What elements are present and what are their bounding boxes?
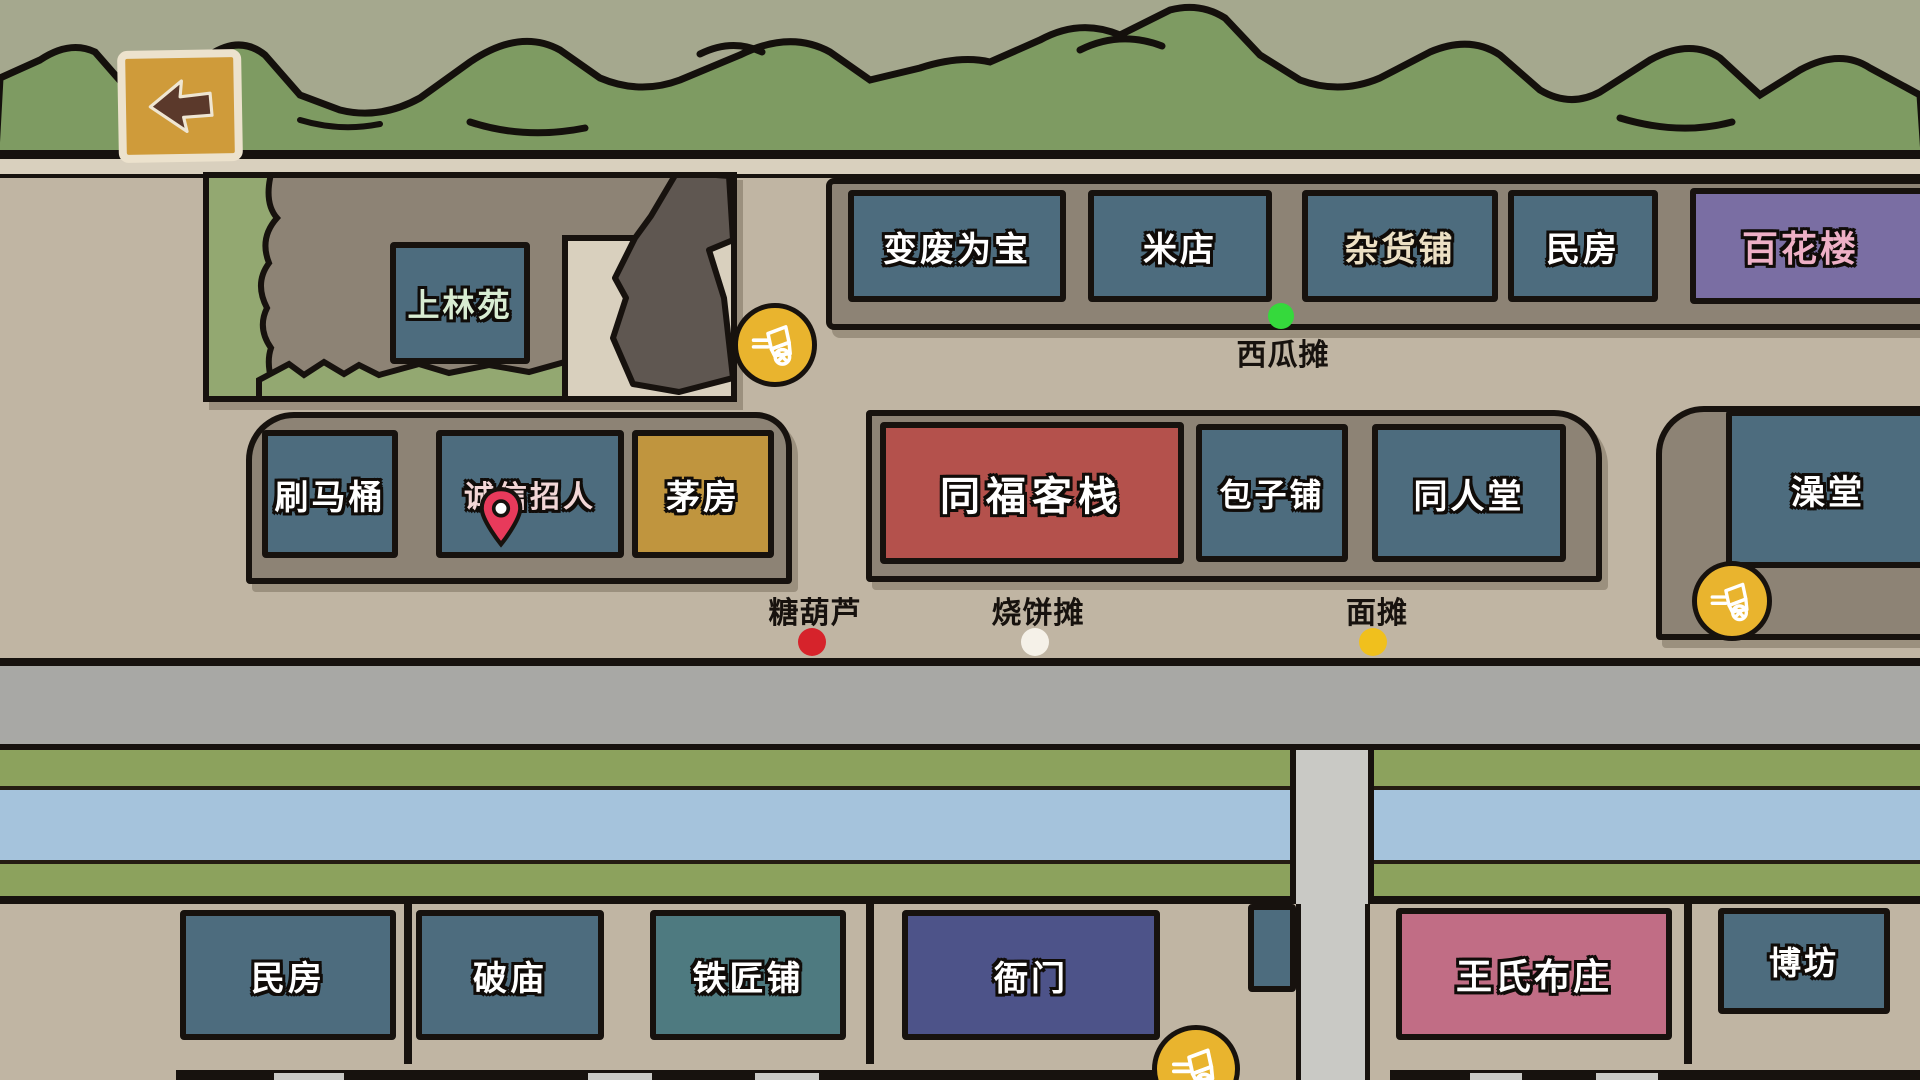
building-tongren-hall[interactable]: 同人堂 — [1372, 424, 1566, 562]
building-ruined-temple[interactable]: 破庙 — [416, 910, 604, 1040]
tanghulu-stall-label: 糖葫芦 — [757, 588, 873, 632]
dock-tab — [1470, 1073, 1522, 1080]
noodle-stall-label: 面摊 — [1334, 588, 1420, 632]
building-label: 米店 — [1143, 222, 1217, 271]
building-label: 茅房 — [666, 470, 740, 519]
building-label: 杂货铺 — [1345, 222, 1456, 271]
street-divider — [1684, 904, 1692, 1064]
river — [0, 786, 1920, 864]
building-house-south[interactable]: 民房 — [180, 910, 396, 1040]
noodle-stall-dot[interactable] — [1359, 628, 1387, 656]
building-tongfu-inn[interactable]: 同福客栈 — [880, 422, 1184, 564]
building-label: 上林苑 — [407, 280, 512, 326]
building-label: 百花楼 — [1742, 220, 1859, 272]
building-gambling-house[interactable]: 博坊 — [1718, 908, 1890, 1014]
river-bank-south — [0, 864, 1920, 896]
bridge — [1290, 750, 1374, 904]
small-south-structure — [1248, 904, 1296, 992]
building-label: 民房 — [251, 951, 325, 1000]
location-pin-icon — [476, 486, 526, 550]
building-rice-shop[interactable]: 米店 — [1088, 190, 1272, 302]
building-recruit[interactable]: 诚信招人 — [436, 430, 624, 558]
bank-edge-line — [0, 896, 1920, 904]
building-bathhouse[interactable]: 澡堂 — [1726, 410, 1920, 568]
building-label: 澡堂 — [1791, 465, 1865, 514]
building-label: 衙门 — [994, 951, 1068, 1000]
building-label: 刷马桶 — [275, 470, 386, 519]
building-shanglin-garden[interactable]: 上林苑 — [390, 242, 530, 364]
river-bank-north — [0, 750, 1920, 786]
back-arrow-icon — [135, 70, 225, 143]
dock-tab — [1596, 1073, 1658, 1080]
shaobing-stall-label: 烧饼摊 — [980, 588, 1096, 632]
tanghulu-stall-dot[interactable] — [798, 628, 826, 656]
street-vendor-cart-icon[interactable] — [1692, 561, 1772, 641]
bridge-path — [1296, 904, 1370, 1080]
dock-tab — [755, 1073, 819, 1080]
building-label: 博坊 — [1769, 938, 1839, 984]
dock-tab — [274, 1073, 344, 1080]
garden-block: 上林苑 — [203, 172, 737, 402]
street-divider — [866, 904, 874, 1064]
street-vendor-cart-icon[interactable] — [1152, 1025, 1240, 1080]
dock-tab — [588, 1073, 652, 1080]
building-label: 同人堂 — [1414, 469, 1525, 518]
watermelon-stall-label: 西瓜摊 — [1228, 330, 1338, 374]
building-label: 同福客栈 — [940, 464, 1124, 522]
shaobing-stall-dot[interactable] — [1021, 628, 1049, 656]
building-baozi-shop[interactable]: 包子铺 — [1196, 424, 1348, 562]
building-toilet-brush[interactable]: 刷马桶 — [262, 430, 398, 558]
watermelon-stall-dot[interactable] — [1268, 303, 1294, 329]
building-wang-cloth-shop[interactable]: 王氏布庄 — [1396, 908, 1672, 1040]
building-label: 民房 — [1546, 222, 1620, 271]
building-label: 变废为宝 — [883, 222, 1031, 271]
building-house-north[interactable]: 民房 — [1508, 190, 1658, 302]
building-grocery-shop[interactable]: 杂货铺 — [1302, 190, 1498, 302]
street-vendor-cart-icon[interactable] — [733, 303, 817, 387]
building-label: 破庙 — [473, 951, 547, 1000]
main-road — [0, 658, 1920, 750]
building-label: 王氏布庄 — [1456, 948, 1612, 1000]
building-recycle-shop[interactable]: 变废为宝 — [848, 190, 1066, 302]
building-label: 铁匠铺 — [693, 951, 804, 1000]
building-label: 包子铺 — [1219, 470, 1324, 516]
building-yamen[interactable]: 衙门 — [902, 910, 1160, 1040]
building-flower-tower[interactable]: 百花楼 — [1690, 188, 1920, 304]
town-map: 上林苑 变废为宝 米店 杂货铺 民房 百花楼 西瓜摊 刷马桶 诚信招人 茅房 同… — [0, 0, 1920, 1080]
street-divider — [404, 904, 412, 1064]
building-outhouse[interactable]: 茅房 — [632, 430, 774, 558]
mountain-backdrop — [0, 0, 1920, 158]
mountain-ridge-art — [0, 0, 1920, 158]
building-blacksmith[interactable]: 铁匠铺 — [650, 910, 846, 1040]
back-button[interactable] — [117, 49, 243, 163]
